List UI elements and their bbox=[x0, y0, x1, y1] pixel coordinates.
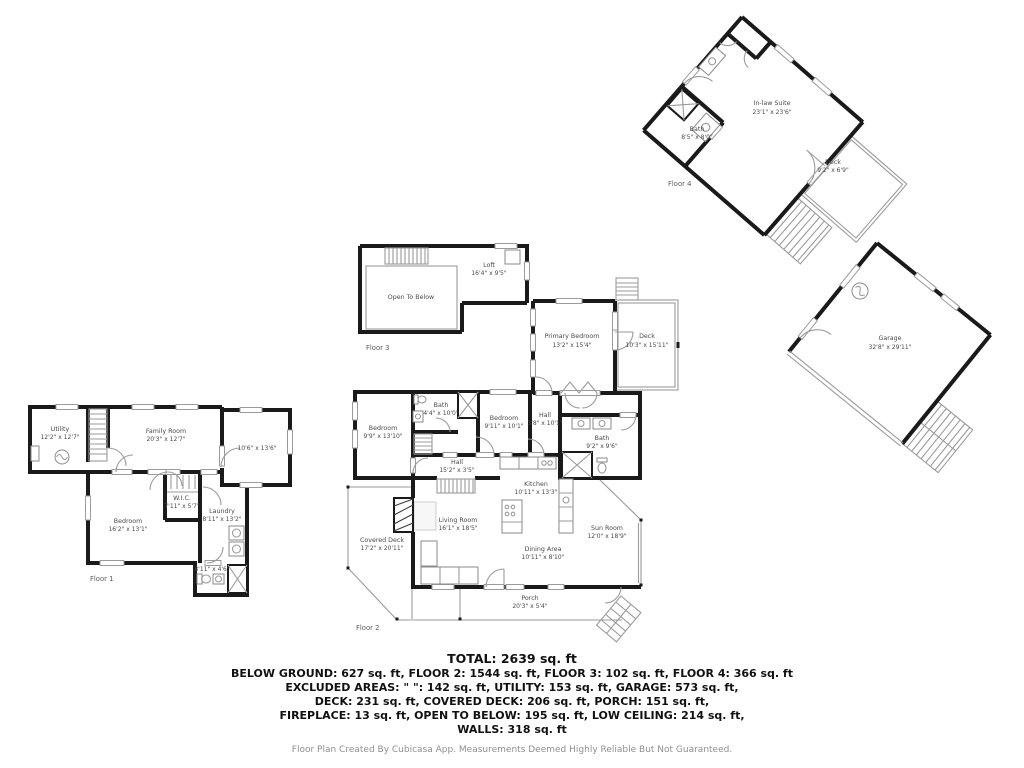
window bbox=[914, 273, 936, 292]
window bbox=[774, 45, 794, 63]
door-gap bbox=[443, 453, 457, 458]
window bbox=[525, 262, 530, 280]
label-garage-dims: 32'8" x 29'11" bbox=[869, 344, 912, 351]
floor1-stairs bbox=[89, 409, 107, 461]
label-kitchen-dims: 10'11" x 13'3" bbox=[515, 489, 558, 496]
label-sun-room-name: Sun Room bbox=[591, 525, 623, 532]
sofa bbox=[421, 541, 478, 584]
total-area: TOTAL: 2639 sq. ft bbox=[0, 652, 1024, 666]
floor2-stairs bbox=[437, 479, 475, 493]
label-inlaw-suite-name: In-law Suite bbox=[754, 100, 791, 107]
label-hall-name: Hall bbox=[451, 459, 463, 466]
label-living-room-dims: 16'1" x 18'5" bbox=[438, 525, 477, 532]
floor3-plan: Loft 16'4" x 9'5" Open To Below Floor 3 bbox=[358, 244, 530, 353]
summary-line-2: EXCLUDED AREAS: " ": 142 sq. ft, UTILITY… bbox=[0, 681, 1024, 695]
summary-line-1: BELOW GROUND: 627 sq. ft, FLOOR 2: 1544 … bbox=[0, 667, 1024, 681]
label-bedroom-left-dims: 9'9" x 13'10" bbox=[363, 433, 402, 440]
window bbox=[100, 561, 124, 566]
door-gap bbox=[484, 585, 504, 590]
floor1-label: Floor 1 bbox=[90, 575, 113, 583]
post bbox=[640, 519, 643, 522]
floor3-stairs bbox=[385, 248, 428, 264]
window bbox=[556, 299, 582, 304]
window bbox=[812, 77, 832, 95]
floor2-label: Floor 2 bbox=[356, 624, 379, 632]
water-heater-icon bbox=[55, 450, 69, 464]
label-bedroom-left-name: Bedroom bbox=[369, 425, 397, 432]
label-bath-main-name: Bath bbox=[595, 435, 610, 442]
window bbox=[490, 390, 516, 395]
window bbox=[495, 244, 517, 249]
label-bedroom-mid-dims: 9'11" x 10'1" bbox=[484, 423, 523, 430]
label-primary-bedroom-name: Primary Bedroom bbox=[545, 333, 600, 340]
label-inlaw-suite-dims: 23'1" x 23'6" bbox=[752, 109, 791, 116]
label-family-room-name: Family Room bbox=[146, 428, 186, 435]
disclaimer-text: Floor Plan Created By Cubicasa App. Meas… bbox=[0, 745, 1024, 755]
label-deck4-dims: 9'2" x 6'9" bbox=[817, 167, 849, 174]
window bbox=[353, 402, 358, 420]
door-gap bbox=[201, 470, 217, 475]
garage-stairs bbox=[902, 401, 972, 473]
label-sun-room-dims: 12'0" x 18'9" bbox=[587, 533, 626, 540]
floor4-walls bbox=[644, 17, 863, 235]
door-gap bbox=[476, 453, 494, 458]
label-porch-dims: 20'3" x 5'4" bbox=[512, 603, 548, 610]
window bbox=[531, 334, 536, 351]
utility-fixture bbox=[31, 446, 39, 461]
label-covered-deck-dims: 17'2" x 20'11" bbox=[361, 545, 404, 552]
window bbox=[548, 585, 564, 590]
label-bath-main-dims: 9'2" x 9'6" bbox=[586, 443, 618, 450]
label-bedroom1-dims: 16'2" x 13'1" bbox=[108, 526, 147, 533]
label-kitchen-name: Kitchen bbox=[524, 481, 548, 488]
water-heater-icon bbox=[849, 280, 872, 303]
covered-deck-porch-outline bbox=[348, 487, 622, 620]
label-bath1-dims: 8'11" x 4'6" bbox=[194, 566, 230, 573]
label-bedroom-mid-name: Bedroom bbox=[490, 415, 518, 422]
label-bath4-name: Bath bbox=[690, 126, 705, 133]
label-dining-area-dims: 10'11" x 8'10" bbox=[522, 554, 565, 561]
label-porch-name: Porch bbox=[521, 595, 538, 602]
window bbox=[531, 360, 536, 377]
label-utility-dims: 12'2" x 12'7" bbox=[40, 434, 79, 441]
post bbox=[459, 618, 462, 621]
floor1-plan: Utility 12'2" x 12'7" Family Room 20'3" … bbox=[30, 405, 293, 598]
label-laundry-dims: 8'11" x 13'2" bbox=[202, 516, 241, 523]
skylight bbox=[505, 250, 520, 264]
label-loft-name: Loft bbox=[483, 262, 495, 269]
door-gap bbox=[620, 413, 636, 418]
floor-plan-page: Utility 12'2" x 12'7" Family Room 20'3" … bbox=[0, 0, 1024, 768]
door-gap bbox=[220, 446, 225, 466]
label-rec-room-dims: 10'6" x 13'6" bbox=[237, 445, 276, 452]
label-hall-upper-name: Hall bbox=[539, 412, 551, 419]
label-open-to-below: Open To Below bbox=[388, 294, 434, 301]
door-gap bbox=[148, 470, 166, 475]
garage-plan bbox=[785, 239, 1024, 474]
window bbox=[531, 309, 536, 326]
window bbox=[941, 294, 960, 310]
door-gap bbox=[536, 391, 552, 396]
label-primary-bedroom-dims: 13'2" x 15'4" bbox=[552, 342, 591, 349]
label-deck4-name: Deck bbox=[825, 159, 841, 166]
label-wic-name: W.I.C. bbox=[173, 495, 191, 502]
garage-door-wall bbox=[787, 351, 903, 446]
window bbox=[240, 408, 262, 413]
fireplace bbox=[394, 498, 436, 532]
label-hall-upper-dims: 3'8" x 10'1" bbox=[527, 420, 563, 427]
door-gap bbox=[613, 330, 618, 350]
label-covered-deck-name: Covered Deck bbox=[360, 537, 404, 544]
floor3-walls bbox=[358, 244, 527, 334]
window bbox=[432, 585, 454, 590]
area-summary: TOTAL: 2639 sq. ft BELOW GROUND: 627 sq.… bbox=[0, 652, 1024, 755]
label-laundry-name: Laundry bbox=[209, 508, 235, 515]
post bbox=[396, 618, 399, 621]
floor3-label: Floor 3 bbox=[366, 344, 389, 352]
window bbox=[240, 483, 262, 488]
wic-shelving bbox=[167, 475, 198, 492]
summary-line-4: FIREPLACE: 13 sq. ft, OPEN TO BELOW: 195… bbox=[0, 709, 1024, 723]
summary-line-5: WALLS: 318 sq. ft bbox=[0, 723, 1024, 737]
label-bath-small-dims: 4'4" x 10'0" bbox=[423, 410, 459, 417]
window bbox=[132, 405, 154, 410]
window bbox=[506, 585, 524, 590]
label-living-room-name: Living Room bbox=[439, 517, 478, 524]
label-deck2-name: Deck bbox=[639, 333, 655, 340]
label-utility-name: Utility bbox=[51, 426, 70, 433]
label-garage-name: Garage bbox=[878, 335, 901, 342]
porch-steps bbox=[597, 596, 641, 642]
door-gap bbox=[112, 470, 132, 475]
floor4-stairs bbox=[766, 197, 832, 263]
label-hall-dims: 15'2" x 3'5" bbox=[439, 467, 475, 474]
label-family-room-dims: 20'3" x 12'7" bbox=[146, 436, 185, 443]
label-wic-dims: 7'11" x 5'7" bbox=[164, 503, 200, 510]
floor4-deck-outline bbox=[800, 136, 906, 243]
label-deck2-dims: 10'3" x 15'11" bbox=[626, 342, 669, 349]
label-dining-area-name: Dining Area bbox=[525, 546, 562, 553]
window bbox=[288, 430, 293, 454]
floor4-label: Floor 4 bbox=[668, 180, 691, 188]
post bbox=[347, 567, 350, 570]
floor2-deck-stairs bbox=[616, 278, 638, 300]
summary-line-3: DECK: 231 sq. ft, COVERED DECK: 206 sq. … bbox=[0, 695, 1024, 709]
window bbox=[86, 496, 91, 520]
label-bath-small-name: Bath bbox=[434, 402, 449, 409]
label-bedroom1-name: Bedroom bbox=[114, 518, 142, 525]
linen-closet bbox=[414, 434, 432, 454]
post bbox=[347, 486, 350, 489]
door-arcs bbox=[669, 34, 849, 207]
label-bath4-dims: 8'5" x 8'0" bbox=[681, 134, 713, 141]
washer-dryer bbox=[229, 526, 244, 556]
window bbox=[353, 430, 358, 448]
label-loft-dims: 16'4" x 9'5" bbox=[471, 270, 507, 277]
window bbox=[56, 405, 78, 410]
window bbox=[176, 405, 198, 410]
window bbox=[613, 312, 618, 330]
